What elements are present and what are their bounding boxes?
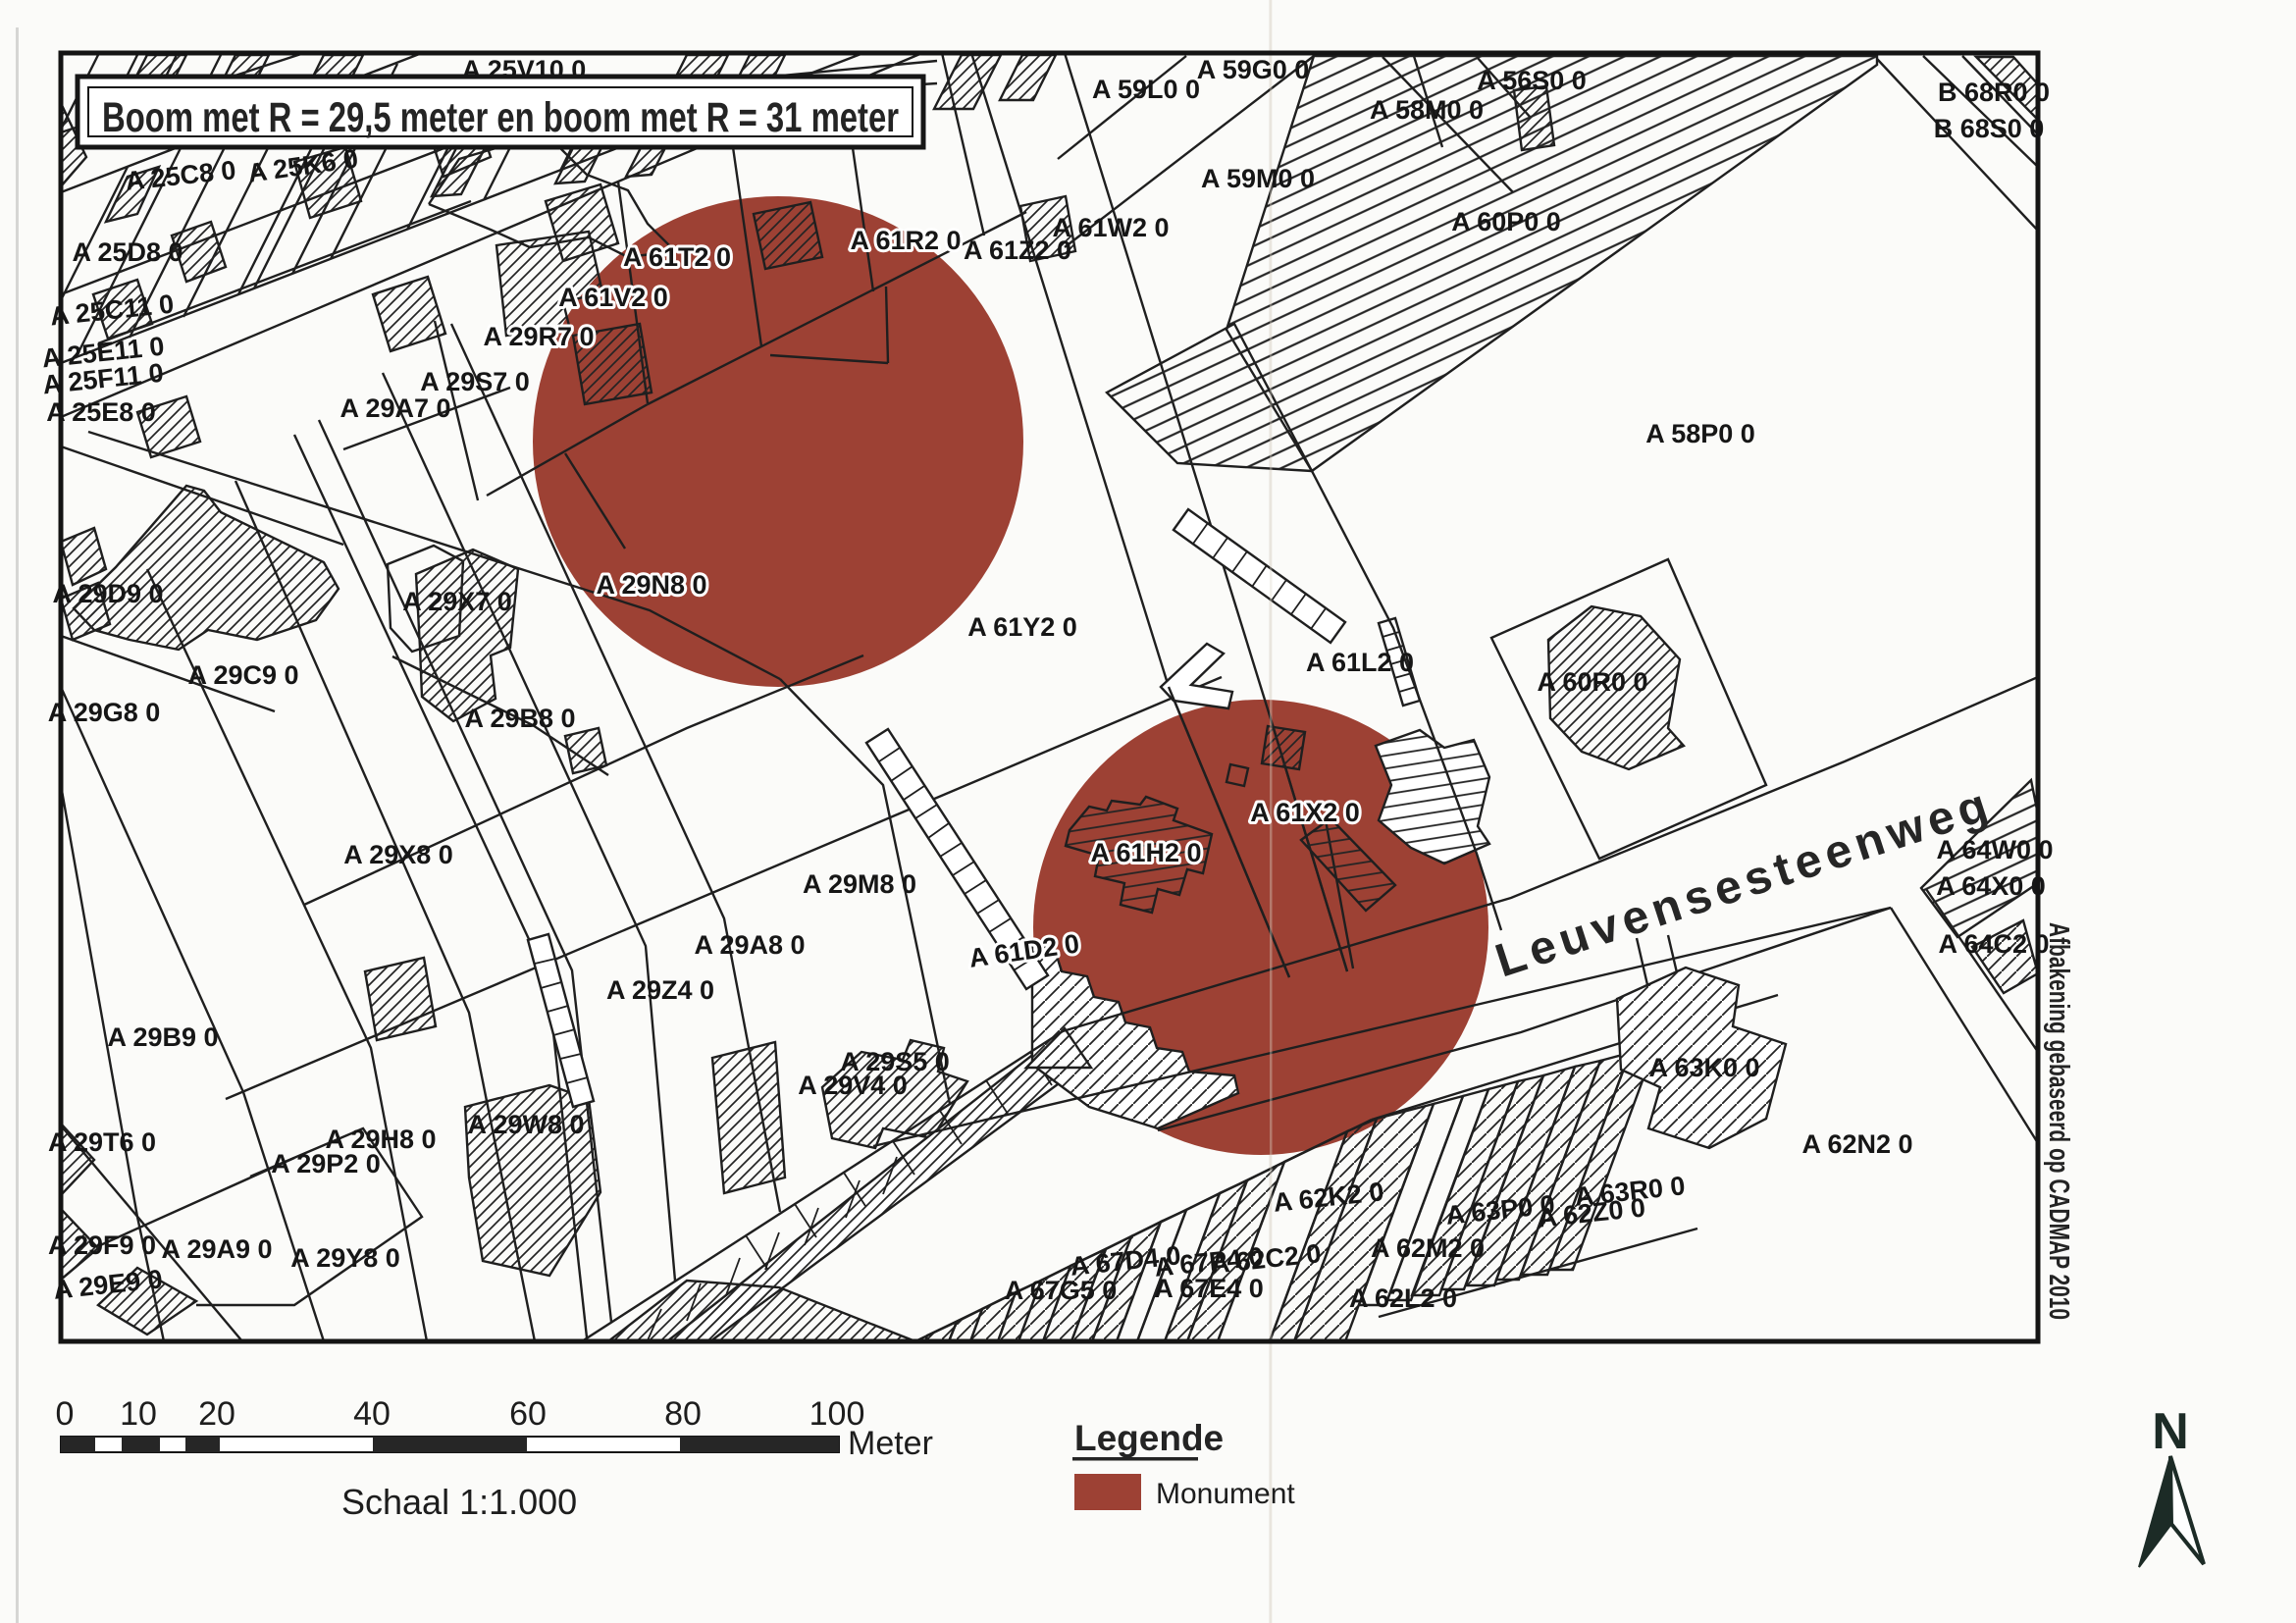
svg-text:Meter: Meter bbox=[848, 1425, 933, 1462]
svg-text:A 60R0 0: A 60R0 0 bbox=[1537, 667, 1647, 697]
svg-text:A 58P0 0: A 58P0 0 bbox=[1645, 419, 1755, 448]
svg-text:B 68R0 0: B 68R0 0 bbox=[1938, 78, 2050, 107]
svg-text:A 29V4 0: A 29V4 0 bbox=[798, 1071, 908, 1100]
svg-text:A 29C9 0: A 29C9 0 bbox=[187, 660, 298, 690]
svg-text:A 61X2 0: A 61X2 0 bbox=[1250, 798, 1360, 827]
svg-text:0: 0 bbox=[56, 1395, 75, 1433]
svg-text:A 29Y8 0: A 29Y8 0 bbox=[290, 1243, 400, 1273]
svg-text:Schaal 1:1.000: Schaal 1:1.000 bbox=[341, 1482, 577, 1522]
svg-text:B 68S0 0: B 68S0 0 bbox=[1934, 114, 2045, 143]
svg-text:60: 60 bbox=[509, 1395, 547, 1433]
svg-text:A 61W2 0: A 61W2 0 bbox=[1052, 213, 1169, 242]
svg-text:A 29A9 0: A 29A9 0 bbox=[161, 1234, 272, 1264]
svg-text:20: 20 bbox=[198, 1395, 235, 1433]
svg-text:A 59L0 0: A 59L0 0 bbox=[1092, 75, 1200, 104]
svg-text:A 62N2 0: A 62N2 0 bbox=[1801, 1129, 1912, 1159]
svg-text:A 61Y2 0: A 61Y2 0 bbox=[967, 612, 1077, 642]
svg-text:A 29T6 0: A 29T6 0 bbox=[48, 1127, 156, 1157]
svg-text:A 61R2 0: A 61R2 0 bbox=[850, 226, 961, 255]
svg-text:10: 10 bbox=[120, 1395, 157, 1433]
svg-text:A 29R7 0: A 29R7 0 bbox=[483, 322, 594, 351]
svg-text:A 29W8 0: A 29W8 0 bbox=[467, 1110, 584, 1139]
svg-text:40: 40 bbox=[353, 1395, 391, 1433]
svg-text:A 29A8 0: A 29A8 0 bbox=[694, 930, 805, 960]
svg-text:A 25D8 0: A 25D8 0 bbox=[72, 237, 183, 267]
svg-text:A 61H2 0: A 61H2 0 bbox=[1090, 838, 1201, 867]
svg-text:A 29X8 0: A 29X8 0 bbox=[343, 840, 453, 869]
svg-text:A 29P2 0: A 29P2 0 bbox=[271, 1149, 381, 1178]
svg-text:A 59M0 0: A 59M0 0 bbox=[1201, 164, 1315, 193]
svg-text:A 29B9 0: A 29B9 0 bbox=[107, 1022, 218, 1052]
svg-text:A 29S7 0: A 29S7 0 bbox=[420, 367, 530, 396]
svg-text:A 29A7 0: A 29A7 0 bbox=[339, 393, 450, 423]
svg-text:A 62M2 0: A 62M2 0 bbox=[1371, 1233, 1485, 1263]
svg-text:A 64C2 0: A 64C2 0 bbox=[1938, 929, 2049, 959]
svg-text:N: N bbox=[2152, 1403, 2189, 1460]
svg-text:A 29F9 0: A 29F9 0 bbox=[48, 1230, 156, 1260]
svg-text:Afbakening gebaseerd op CADMAP: Afbakening gebaseerd op CADMAP 2010 bbox=[2043, 922, 2074, 1320]
svg-text:Boom met R = 29,5 meter en boo: Boom met R = 29,5 meter en boom met R = … bbox=[102, 94, 899, 141]
svg-text:A 56S0 0: A 56S0 0 bbox=[1477, 66, 1587, 95]
svg-text:A 63K0 0: A 63K0 0 bbox=[1648, 1053, 1759, 1082]
svg-text:A 58M0 0: A 58M0 0 bbox=[1370, 95, 1484, 125]
svg-text:A 29X7 0: A 29X7 0 bbox=[402, 587, 512, 616]
svg-text:A 64X0 0: A 64X0 0 bbox=[1936, 871, 2046, 901]
svg-text:A 29M8 0: A 29M8 0 bbox=[803, 869, 916, 899]
svg-text:Legende: Legende bbox=[1074, 1418, 1224, 1458]
svg-text:80: 80 bbox=[664, 1395, 702, 1433]
svg-text:A 61T2 0: A 61T2 0 bbox=[623, 242, 731, 272]
svg-text:A 29D9 0: A 29D9 0 bbox=[52, 579, 163, 608]
svg-text:Monument: Monument bbox=[1156, 1478, 1295, 1510]
svg-text:A 60P0 0: A 60P0 0 bbox=[1451, 207, 1561, 236]
svg-text:A 29G8 0: A 29G8 0 bbox=[48, 698, 161, 727]
svg-text:A 29Z4 0: A 29Z4 0 bbox=[606, 975, 714, 1005]
svg-text:A 61V2 0: A 61V2 0 bbox=[558, 283, 668, 312]
svg-text:A 67G5 0: A 67G5 0 bbox=[1005, 1276, 1118, 1305]
svg-text:A 62L2 0: A 62L2 0 bbox=[1349, 1283, 1457, 1313]
svg-text:A 61L2 0: A 61L2 0 bbox=[1306, 648, 1414, 677]
svg-text:A 67E4 0: A 67E4 0 bbox=[1154, 1274, 1264, 1303]
svg-text:A 29B8 0: A 29B8 0 bbox=[464, 704, 575, 733]
svg-text:A 59G0 0: A 59G0 0 bbox=[1197, 55, 1310, 84]
svg-text:A 29N8 0: A 29N8 0 bbox=[596, 570, 706, 600]
